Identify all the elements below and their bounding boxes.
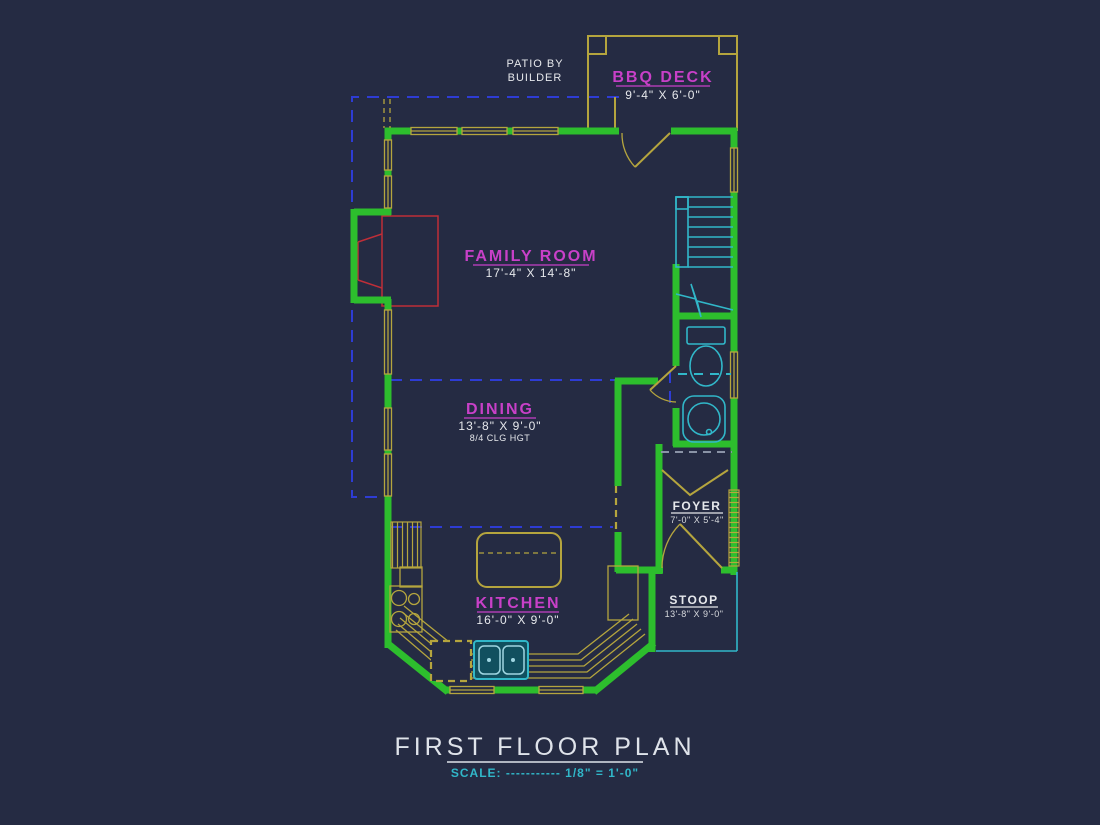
kitchen-name: KITCHEN <box>475 595 560 612</box>
room-label-family-room: FAMILY ROOM 17'-4" X 14'-8" <box>464 248 597 280</box>
plan-title: FIRST FLOOR PLAN <box>394 733 695 761</box>
bbq-deck-dims: 9'-4" X 6'-0" <box>625 88 700 102</box>
title-block: FIRST FLOOR PLAN SCALE: ----------- 1/8"… <box>394 733 695 780</box>
patio-note-line1: PATIO BY <box>506 58 563 70</box>
foyer-dims: 7'-0" X 5'-4" <box>670 515 723 525</box>
cased-openings <box>384 99 616 531</box>
room-label-stoop: STOOP 13'-8" X 9'-0" <box>665 593 724 619</box>
dining-ceiling-note: 8/4 CLG HGT <box>470 433 531 443</box>
staircase <box>676 197 733 317</box>
room-label-kitchen: KITCHEN 16'-0" X 9'-0" <box>475 595 560 627</box>
entry-door <box>662 524 722 568</box>
stoop-name: STOOP <box>669 593 718 607</box>
kitchen-island <box>477 533 561 587</box>
patio-outline <box>352 97 670 527</box>
dining-dims: 13'-8" X 9'-0" <box>458 419 541 433</box>
entry-sidelite <box>729 490 739 566</box>
pedestal-sink <box>683 396 725 442</box>
dining-name: DINING <box>466 401 534 418</box>
toilet <box>687 327 725 386</box>
floor-plan-canvas: PATIO BY BUILDER BBQ DECK 9'-4" X 6'-0" … <box>0 0 1100 825</box>
patio-note: PATIO BY BUILDER <box>506 58 563 84</box>
room-label-bbq-deck: BBQ DECK 9'-4" X 6'-0" <box>612 69 713 102</box>
foyer-name: FOYER <box>673 499 722 513</box>
fireplace <box>358 216 438 306</box>
refrigerator <box>608 566 638 620</box>
patio-note-line2: BUILDER <box>508 72 563 84</box>
scale-note: SCALE: ----------- 1/8" = 1'-0" <box>451 766 639 780</box>
dishwasher <box>431 641 471 681</box>
room-label-foyer: FOYER 7'-0" X 5'-4" <box>670 499 723 525</box>
floor-plan-drawing: PATIO BY BUILDER BBQ DECK 9'-4" X 6'-0" … <box>0 0 1100 825</box>
kitchen-dims: 16'-0" X 9'-0" <box>476 613 559 627</box>
closet-double-doors <box>662 470 728 495</box>
family-room-name: FAMILY ROOM <box>464 248 597 265</box>
back-door <box>622 133 670 167</box>
room-label-dining: DINING 13'-8" X 9'-0" 8/4 CLG HGT <box>458 401 541 443</box>
family-room-dims: 17'-4" X 14'-8" <box>486 266 577 280</box>
stoop-dims: 13'-8" X 9'-0" <box>665 609 724 619</box>
kitchen-sink <box>474 641 528 679</box>
bbq-deck-name: BBQ DECK <box>612 69 713 86</box>
